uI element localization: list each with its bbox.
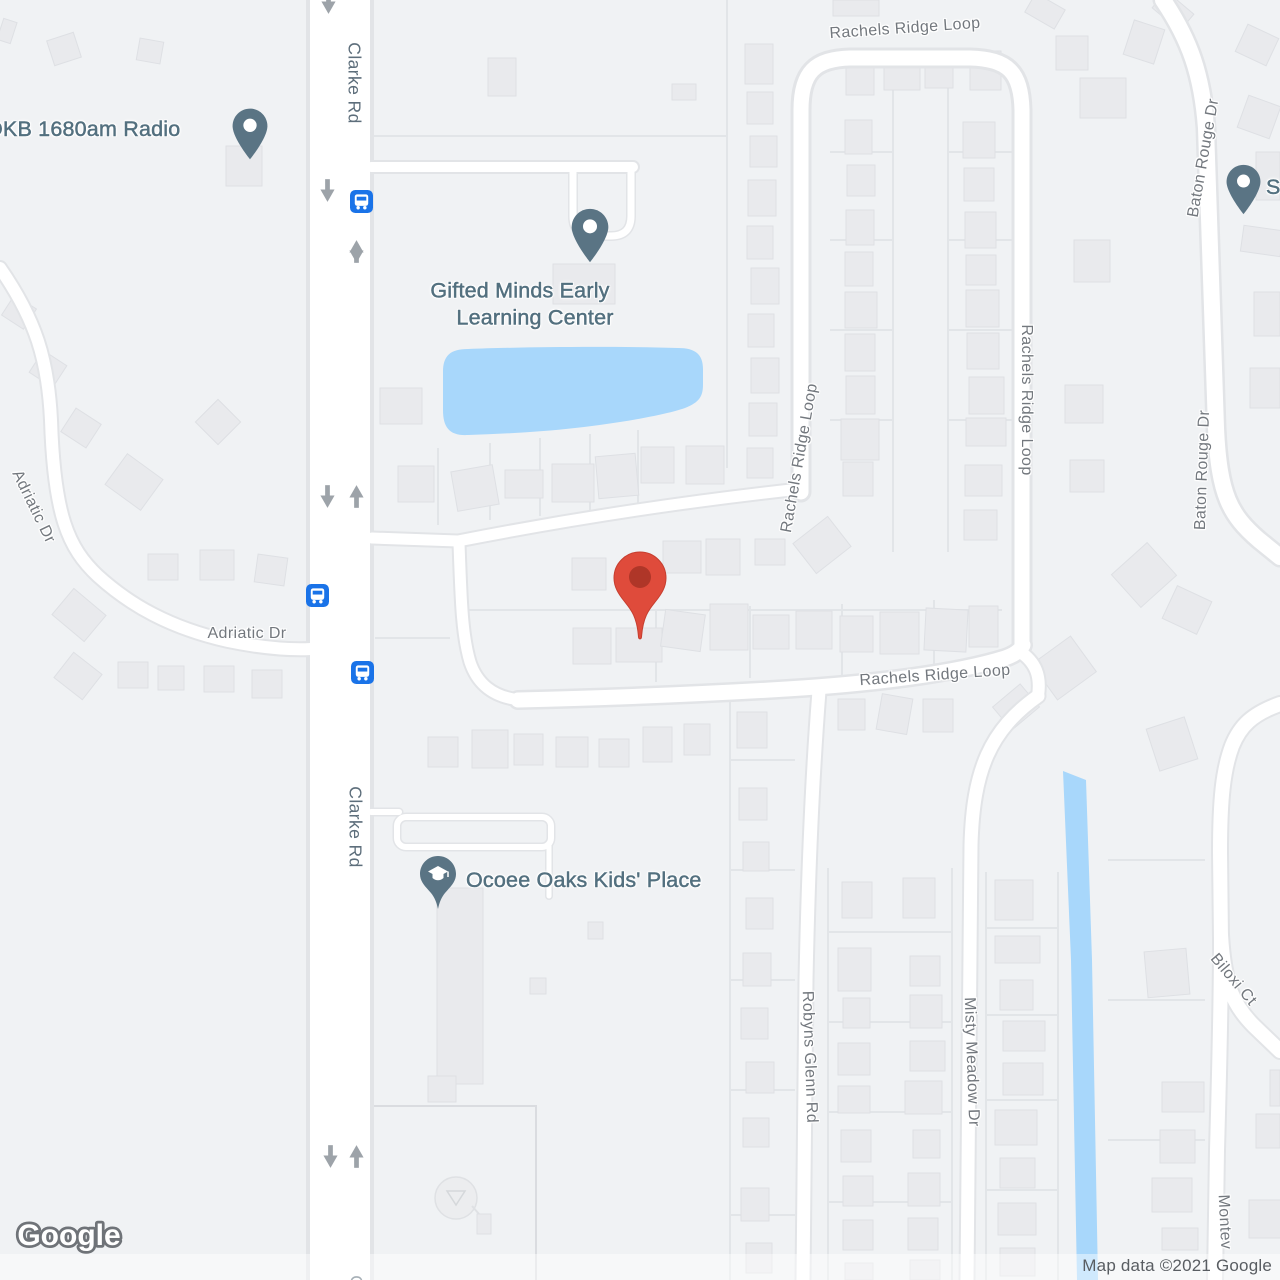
poi-label-gifted-minds-line1[interactable]: Gifted Minds Early	[430, 279, 609, 304]
poi-label-gifted-minds-line2[interactable]: Learning Center	[456, 306, 613, 331]
poi-label-ocoee-oaks[interactable]: Ocoee Oaks Kids' Place	[466, 868, 702, 893]
one-way-down-arrow-icon	[319, 484, 336, 509]
bus-stop-icon[interactable]	[351, 661, 374, 684]
gifted-minds-pin-icon[interactable]	[570, 207, 610, 264]
one-way-down-arrow-icon	[320, 0, 337, 15]
radio-station-pin-icon[interactable]	[231, 106, 269, 162]
one-way-up-arrow-icon	[348, 484, 365, 509]
street-label-rachels-ridge-loop-right-leg: Rachels Ridge Loop	[1017, 324, 1035, 475]
one-way-down-arrow-icon	[322, 1144, 339, 1169]
map-attribution-text: Map data ©2021 Google	[1082, 1256, 1272, 1276]
one-way-up-arrow-icon	[348, 239, 365, 264]
street-label-clarke-rd-top: Clarke Rd	[344, 42, 365, 123]
street-label-montevista-clipped: Montev	[1214, 1194, 1235, 1250]
street-label-adriatic-dr-horizontal: Adriatic Dr	[207, 625, 286, 643]
partial-poi-pin-icon[interactable]	[1225, 163, 1262, 216]
one-way-down-arrow-icon	[319, 178, 336, 203]
ocoee-oaks-graduation-cap-pin-icon[interactable]	[419, 855, 457, 911]
poi-label-radio-station[interactable]: OKB 1680am Radio	[0, 117, 180, 142]
bus-stop-icon[interactable]	[350, 190, 373, 213]
pond	[443, 347, 703, 435]
map-canvas[interactable]: Clarke Rd Clarke Rd Clarke Rd Rachels Ri…	[0, 0, 1280, 1280]
one-way-up-arrow-icon	[348, 1144, 365, 1169]
poi-label-partial-s[interactable]: S	[1266, 175, 1280, 200]
google-logo-text: Google	[17, 1219, 120, 1252]
destination-red-marker-icon[interactable]	[612, 550, 668, 642]
street-label-clarke-rd-mid: Clarke Rd	[345, 786, 366, 867]
bus-stop-icon[interactable]	[306, 584, 329, 607]
canal	[1063, 771, 1098, 1280]
school-structure	[435, 1177, 491, 1234]
google-logo[interactable]: Google	[10, 1213, 128, 1257]
